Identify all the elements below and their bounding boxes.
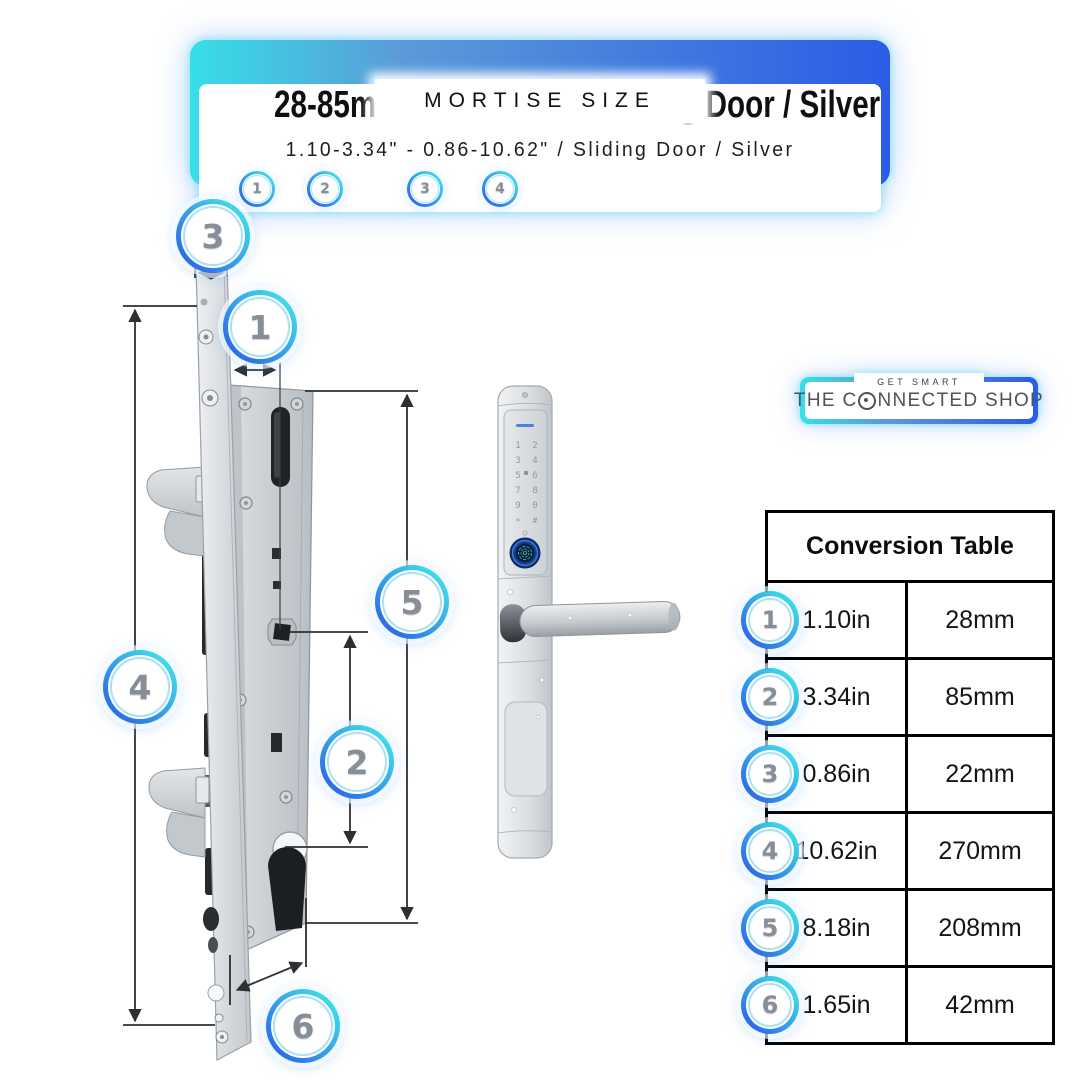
header-eyebrow: MORTISE SIZE xyxy=(375,79,705,123)
svg-text:2: 2 xyxy=(532,441,537,451)
svg-text:4: 4 xyxy=(532,456,537,466)
svg-text:*: * xyxy=(516,517,521,526)
svg-text:7: 7 xyxy=(515,486,520,496)
mm-value: 270mm xyxy=(908,814,1052,888)
header-frame: MORTISE SIZE 28-85mm - 22-270mm / Slidin… xyxy=(190,40,890,186)
table-row: 6 1.65in 42mm xyxy=(768,965,1052,1042)
svg-text:0: 0 xyxy=(532,501,537,511)
mm-value: 85mm xyxy=(908,660,1052,734)
table-row: 2 3.34in 85mm xyxy=(768,657,1052,734)
brand-logo: GET SMART THE CNNECTED SHOP xyxy=(800,377,1038,424)
smart-handle-product: 1 2 3 4 5 6 7 8 9 0 * # xyxy=(480,380,700,870)
fingerprint-sensor xyxy=(510,538,541,569)
mm-value: 42mm xyxy=(908,968,1052,1042)
svg-text:9: 9 xyxy=(515,501,520,511)
svg-text:8: 8 xyxy=(532,486,537,496)
callout-2: 2 xyxy=(320,725,394,799)
callout-3: 3 xyxy=(176,199,250,273)
callout-5: 5 xyxy=(375,565,449,639)
mm-value: 208mm xyxy=(908,891,1052,965)
conversion-table-title: Conversion Table xyxy=(768,513,1052,580)
header-marker-2: 2 xyxy=(307,171,343,207)
mm-value: 22mm xyxy=(908,737,1052,811)
row-marker-5: 5 xyxy=(741,899,799,957)
svg-text:1: 1 xyxy=(515,441,520,451)
svg-text:3: 3 xyxy=(515,456,520,466)
row-marker-4: 4 xyxy=(741,822,799,880)
page-subtitle: 1.10-3.34" - 0.86-10.62" / Sliding Door … xyxy=(209,139,871,162)
row-marker-6: 6 xyxy=(741,976,799,1034)
svg-text:6: 6 xyxy=(532,471,537,481)
svg-text:5: 5 xyxy=(515,471,520,481)
callout-1: 1 xyxy=(223,290,297,364)
callout-6: 6 xyxy=(266,989,340,1063)
key-cover-panel xyxy=(505,702,547,796)
logo-tagline: GET SMART xyxy=(854,373,984,391)
callout-4: 4 xyxy=(103,650,177,724)
logo-name: THE CNNECTED SHOP xyxy=(794,390,1044,412)
row-marker-2: 2 xyxy=(741,668,799,726)
row-marker-3: 3 xyxy=(741,745,799,803)
logo-o-icon xyxy=(858,392,876,410)
svg-text:#: # xyxy=(533,516,538,525)
conversion-table: Conversion Table 1 1.10in 28mm 2 3.34in … xyxy=(765,510,1055,1045)
mortise-size-infographic: { "header": { "eyebrow": "MORTISE SIZE",… xyxy=(0,0,1080,1080)
table-row: 3 0.86in 22mm xyxy=(768,734,1052,811)
header-marker-3: 3 xyxy=(407,171,443,207)
header-marker-1: 1 xyxy=(239,171,275,207)
table-row: 4 10.62in 270mm xyxy=(768,811,1052,888)
row-marker-1: 1 xyxy=(741,591,799,649)
mm-value: 28mm xyxy=(908,583,1052,657)
table-row: 1 1.10in 28mm xyxy=(768,580,1052,657)
table-row: 5 8.18in 208mm xyxy=(768,888,1052,965)
keypad-panel: 1 2 3 4 5 6 7 8 9 0 * # xyxy=(504,410,547,575)
status-light xyxy=(516,424,534,427)
hook-bolt-lower xyxy=(149,713,216,895)
header-marker-4: 4 xyxy=(482,171,518,207)
